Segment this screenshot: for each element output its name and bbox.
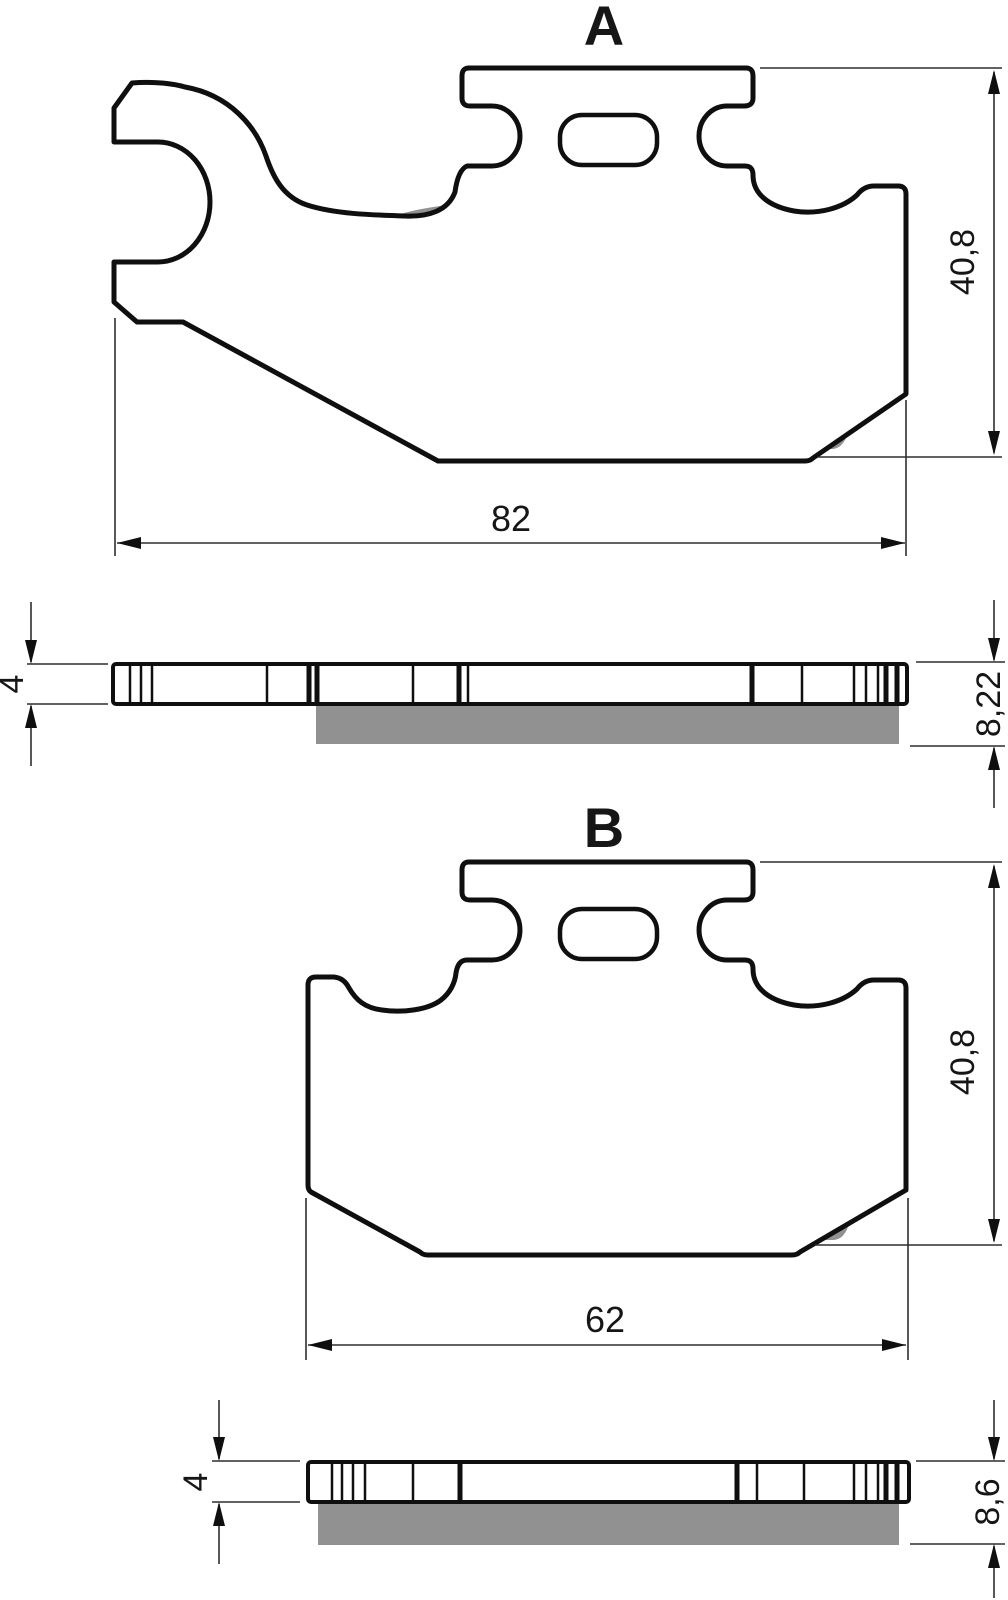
figure-b-label: B <box>584 796 624 859</box>
arrow-up-icon <box>25 704 37 728</box>
dim-a-height-label: 40,8 <box>944 229 982 295</box>
arrow-left-icon <box>117 537 141 549</box>
pad-b-center-hole <box>560 909 657 959</box>
arrow-down-icon <box>988 638 1000 662</box>
dim-b-height-label: 40,8 <box>944 1029 982 1095</box>
arrow-down-icon <box>988 1437 1000 1461</box>
brake-pad-technical-drawing: A 40,8 82 <box>0 0 1008 1600</box>
arrow-right-icon <box>882 1339 906 1351</box>
arrow-down-icon <box>213 1437 225 1461</box>
dim-b-plate-label: 4 <box>177 1473 215 1492</box>
dim-a-total-thickness: 8,22 <box>910 600 1008 808</box>
arrow-up-icon <box>988 70 1000 94</box>
arrow-down-icon <box>988 1219 1000 1243</box>
arrow-up-icon <box>988 864 1000 888</box>
dim-b-plate-thickness: 4 <box>177 1400 300 1564</box>
dim-b-width-label: 62 <box>585 1299 625 1340</box>
pad-a-center-hole <box>560 115 657 165</box>
arrow-down-icon <box>25 640 37 664</box>
pad-a-side-backplate <box>113 664 907 704</box>
figure-b-side-view: 4 8,6 <box>177 1400 1007 1598</box>
figure-a: A 40,8 82 <box>114 0 1002 556</box>
dim-a-width-label: 82 <box>491 498 531 539</box>
dim-b-total-label: 8,6 <box>969 1478 1007 1525</box>
figure-a-label: A <box>584 0 624 57</box>
figure-b: B 40,8 62 <box>306 796 1002 1360</box>
arrow-up-icon <box>988 1544 1000 1568</box>
pad-a-side-friction <box>316 704 899 744</box>
arrow-right-icon <box>881 537 905 549</box>
drawing-canvas: A 40,8 82 <box>0 0 1008 1600</box>
arrow-down-icon <box>988 431 1000 455</box>
arrow-up-icon <box>213 1502 225 1526</box>
dim-a-plate-label: 4 <box>0 675 31 694</box>
dim-a-plate-thickness: 4 <box>0 602 108 766</box>
dim-b-total-thickness: 8,6 <box>910 1400 1007 1598</box>
dim-a-total-label: 8,22 <box>970 671 1008 737</box>
arrow-up-icon <box>988 746 1000 770</box>
figure-a-side-view: 4 8,22 <box>0 600 1008 808</box>
arrow-left-icon <box>308 1339 332 1351</box>
pad-b-side-friction <box>318 1502 899 1545</box>
pad-b-side-backplate <box>308 1462 909 1502</box>
pad-a-backplate-outline <box>114 68 906 461</box>
